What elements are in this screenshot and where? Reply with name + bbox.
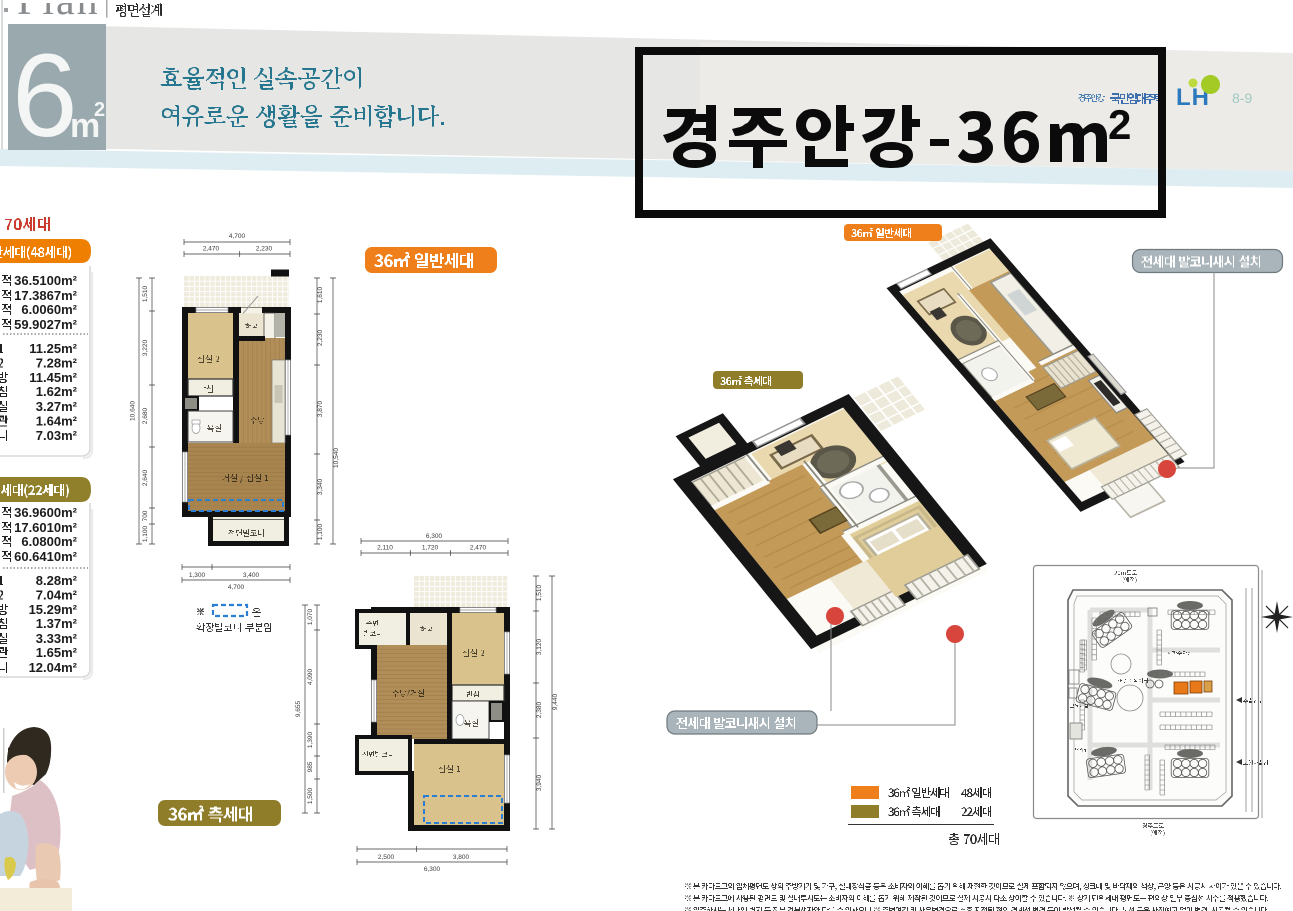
svg-text:7.04m²: 7.04m²: [36, 588, 78, 603]
svg-text:1,510: 1,510: [142, 285, 149, 302]
svg-text:3,400: 3,400: [243, 572, 260, 579]
svg-text:10,540: 10,540: [333, 448, 340, 468]
svg-text:985: 985: [307, 761, 314, 772]
svg-text:3,870: 3,870: [317, 400, 324, 417]
svg-text:4,700: 4,700: [229, 233, 246, 240]
svg-text:36.5100m²: 36.5100m²: [14, 273, 78, 288]
svg-text:36.9600m²: 36.9600m²: [14, 505, 78, 520]
svg-text:12.04m²: 12.04m²: [29, 660, 78, 675]
svg-text:2,230: 2,230: [317, 329, 324, 346]
svg-text:2,380: 2,380: [536, 701, 543, 718]
svg-text:2,230: 2,230: [256, 246, 273, 253]
svg-text:Plan: Plan: [17, 0, 100, 24]
svg-text:3,340: 3,340: [317, 478, 324, 495]
svg-text:1,510: 1,510: [536, 584, 543, 601]
svg-text:1.65m²: 1.65m²: [36, 645, 78, 660]
svg-text:2,470: 2,470: [203, 246, 220, 253]
svg-text:6: 6: [12, 30, 78, 162]
svg-text:9,655: 9,655: [295, 700, 302, 717]
svg-text:11.45m²: 11.45m²: [29, 370, 77, 385]
svg-text:3,800: 3,800: [453, 854, 470, 861]
svg-text:3,120: 3,120: [536, 638, 543, 655]
svg-text:2,470: 2,470: [470, 545, 487, 552]
svg-text:6.0060m²: 6.0060m²: [21, 302, 77, 317]
svg-text:7.28m²: 7.28m²: [36, 356, 78, 371]
svg-text:15.29m²: 15.29m²: [29, 602, 78, 617]
svg-text:1.37m²: 1.37m²: [36, 616, 78, 631]
svg-text:4,090: 4,090: [307, 668, 314, 685]
svg-text:1,720: 1,720: [422, 545, 439, 552]
svg-text:10,640: 10,640: [130, 401, 137, 421]
svg-text:60.6410m²: 60.6410m²: [14, 549, 78, 564]
svg-text:1,610: 1,610: [317, 286, 324, 303]
svg-text:1.64m²: 1.64m²: [36, 414, 78, 429]
svg-text:6.0800m²: 6.0800m²: [21, 534, 77, 549]
svg-text:2,640: 2,640: [142, 469, 149, 486]
svg-text:3.27m²: 3.27m²: [36, 399, 78, 414]
svg-text:1,300: 1,300: [189, 572, 206, 579]
svg-text:7.03m²: 7.03m²: [36, 428, 78, 443]
svg-text:1,390: 1,390: [307, 731, 314, 748]
svg-text:3.33m²: 3.33m²: [36, 631, 78, 646]
svg-text:17.3867m²: 17.3867m²: [14, 288, 78, 303]
svg-text:4,700: 4,700: [228, 584, 245, 591]
svg-text:6,300: 6,300: [426, 533, 443, 540]
svg-text:700: 700: [142, 510, 149, 521]
svg-text:11.25m²: 11.25m²: [29, 341, 77, 356]
svg-text:3,940: 3,940: [536, 774, 543, 791]
svg-text:1,500: 1,500: [307, 787, 314, 804]
svg-text:59.9027m²: 59.9027m²: [14, 317, 78, 332]
svg-text:9,440: 9,440: [552, 693, 559, 710]
svg-text:1,070: 1,070: [307, 608, 314, 625]
svg-text:2: 2: [1108, 101, 1131, 148]
svg-text:6,300: 6,300: [424, 866, 441, 873]
svg-text:2,110: 2,110: [377, 545, 393, 552]
svg-text:17.6010m²: 17.6010m²: [14, 520, 78, 535]
svg-text:1.62m²: 1.62m²: [36, 384, 78, 399]
svg-text:1,100: 1,100: [142, 525, 149, 542]
svg-text:2: 2: [94, 99, 105, 121]
svg-text:3,220: 3,220: [142, 339, 149, 356]
svg-text:2,680: 2,680: [142, 407, 149, 424]
svg-text:2,500: 2,500: [378, 854, 395, 861]
svg-text:1,100: 1,100: [317, 523, 324, 540]
svg-text:8-9: 8-9: [1232, 90, 1252, 106]
svg-text:8.28m²: 8.28m²: [36, 573, 78, 588]
